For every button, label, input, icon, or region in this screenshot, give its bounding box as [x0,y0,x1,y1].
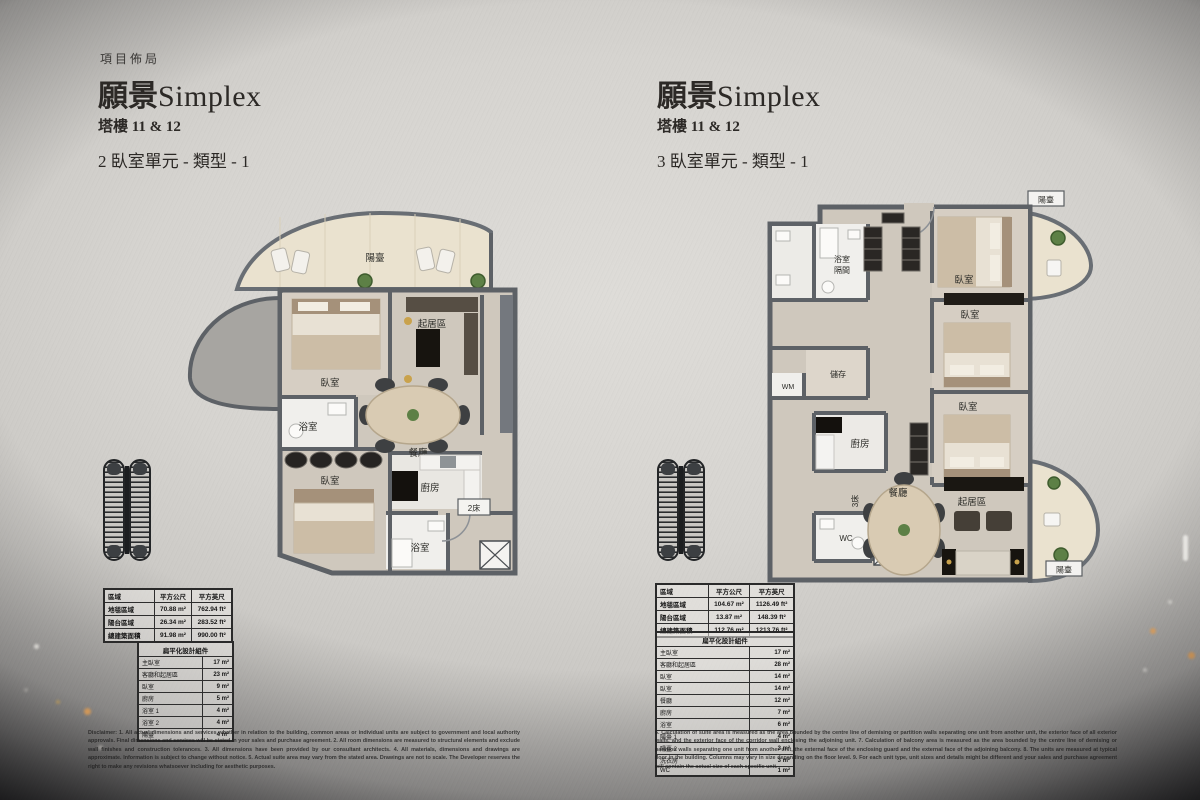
right-title-latin: Simplex [717,80,821,113]
toilet [852,537,864,549]
kitchen-label: 廚房 [850,438,869,450]
window-band [500,295,513,433]
area-cell: 990.00 ft² [192,629,232,643]
toilet [822,281,834,293]
balcony-table [1047,260,1061,276]
bedroom1-label: 臥室 [954,274,973,286]
bath-label-line1: 浴室 [834,254,850,264]
left-area-table: 區域 平方公尺 平方英尺 地毯區域 70.88 m² 762.94 ft² 陽台… [103,588,233,643]
area-cell: 地毯區域 [104,603,154,616]
elevator-icon [655,458,707,562]
component-cell: 14 m² [750,683,794,695]
floor-plan-2br: 陽臺 臥室 起居區 浴室 [180,203,525,578]
bedroom1-label: 臥室 [320,377,339,389]
bath1-label: 浴室 [298,421,317,433]
facade-wedge [190,298,280,409]
sofa [942,549,1024,575]
svg-text:陽臺: 陽臺 [1038,195,1054,205]
component-cell: 廚房 [656,707,750,719]
area-cell: 762.94 ft² [192,603,232,616]
city-light [56,700,60,704]
area-cell: 148.39 ft² [750,611,794,624]
elevator-icon [101,458,153,562]
sink [328,403,346,415]
table-row: 區域 平方公尺 平方英尺 [104,589,232,603]
area-cell: 1126.49 ft² [750,598,794,611]
component-cell: 28 m² [750,659,794,671]
bedroom3-label: 臥室 [958,401,977,413]
bed [944,323,1010,387]
balcony-bottom-tag: 陽臺 [1046,561,1082,576]
component-table-title: 扁平化設計組件 [656,632,794,647]
left-tower-label: 塔樓 11 & 12 [98,115,262,136]
component-cell: 7 m² [750,707,794,719]
area-cell: 91.98 m² [154,629,192,643]
city-light [1183,535,1188,561]
living-label: 起居區 [418,319,447,330]
wc-label: WC [839,534,853,543]
component-cell: 餐廳 [656,695,750,707]
component-cell: 浴室 1 [138,705,203,717]
table-row: 陽台區域 26.34 m² 283.52 ft² [104,616,232,629]
component-table-title: 扁平化設計組件 [138,642,233,657]
disclaimer-left: Disclaimer: 1. All actual dimensions and… [88,729,520,771]
component-cell: 臥室 [138,681,203,693]
bath2-label: 浴室 [410,542,429,554]
table-row: 扁平化設計組件 [656,632,794,647]
media-band [944,293,1024,305]
kitchen-label: 廚房 [420,482,439,494]
armchair [986,511,1012,531]
left-unit-type-label: 2 臥室單元 - 類型 - 1 [98,147,262,172]
entry-gap [904,203,934,211]
table-row: 餐廳12 m² [656,695,794,707]
beds-tag: 3床 [850,495,860,507]
table-row: 地毯區域 70.88 m² 762.94 ft² [104,603,232,616]
plant-icon [358,274,372,288]
plant-icon [1048,477,1060,489]
right-title-cjk: 願景 [657,80,717,113]
component-cell: 主臥室 [138,657,203,669]
table-row: 客廳和起居區23 m² [138,669,233,681]
component-cell: 廚房 [138,693,203,705]
table-row: 臥室9 m² [138,681,233,693]
left-title-cjk: 願景 [98,80,158,113]
table-row: 客廳和起居區28 m² [656,659,794,671]
table-row: 扁平化設計組件 [138,642,233,657]
plant-icon [1054,548,1068,562]
bed [294,489,374,553]
bed [938,217,1012,287]
fixture [776,231,790,241]
dining-label: 餐廳 [888,487,908,499]
table-row: 廚房5 m² [138,693,233,705]
component-cell: 臥室 [656,671,750,683]
component-cell: 5 m² [203,693,233,705]
lamp-icon [404,375,412,383]
living-label: 起居區 [958,497,987,508]
area-cell: 陽台區域 [104,616,154,629]
table-row: 陽台區域 13.87 m² 148.39 ft² [656,611,794,624]
area-cell: 26.34 m² [154,616,192,629]
balcony-top-tag: 陽臺 [1028,191,1064,206]
component-cell: 12 m² [750,695,794,707]
bedroom2-label: 臥室 [320,475,339,487]
area-header-region: 區域 [656,584,708,598]
tv-unit [944,477,1024,491]
table-row: 浴室 14 m² [138,705,233,717]
area-cell: 283.52 ft² [192,616,232,629]
tub [820,228,838,258]
city-light [24,688,28,692]
area-cell: 地毯區域 [656,598,708,611]
area-cell: 70.88 m² [154,603,192,616]
city-light [1143,668,1147,672]
table-row: 主臥室17 m² [138,657,233,669]
left-unit-header: 願景Simplex 塔樓 11 & 12 2 臥室單元 - 類型 - 1 [98,82,262,172]
area-header-sqft: 平方英尺 [750,584,794,598]
floor-plan-3br: 陽臺 陽臺 [758,183,1103,588]
svg-text:2床: 2床 [468,503,480,513]
right-unit-type-label: 3 臥室單元 - 類型 - 1 [657,147,821,172]
disclaimer-right: 6. Calculation of suite area is measured… [655,729,1117,771]
component-cell: 9 m² [203,681,233,693]
beds-tag: 2床 [458,499,490,515]
table-row: 臥室14 m² [656,683,794,695]
svg-text:陽臺: 陽臺 [1056,565,1072,575]
right-area-table: 區域 平方公尺 平方英尺 地毯區域 104.67 m² 1126.49 ft² … [655,583,795,638]
right-unit-header: 願景Simplex 塔樓 11 & 12 3 臥室單元 - 類型 - 1 [657,82,821,172]
component-cell: 4 m² [203,705,233,717]
city-light [1168,600,1172,604]
area-header-sqft: 平方英尺 [192,589,232,603]
table-row: 廚房7 m² [656,707,794,719]
sofa [406,297,478,312]
tv-unit [416,329,440,367]
kitchen-counter [816,435,834,469]
right-tower-label: 塔樓 11 & 12 [657,115,821,136]
table-row: 總建築面積 91.98 m² 990.00 ft² [104,629,232,643]
bath-label-line2: 隔間 [834,266,850,275]
component-cell: 客廳和起居區 [656,659,750,671]
area-cell: 總建築面積 [104,629,154,643]
wm-label: WM [782,384,795,391]
bedroom2-label: 臥室 [960,309,979,321]
right-unit-title: 願景Simplex [657,82,821,112]
sink [848,230,860,239]
balcony-label: 陽臺 [365,252,384,264]
stove [440,456,456,468]
city-light [1150,628,1156,634]
area-header-region: 區域 [104,589,154,603]
sink [820,519,834,529]
component-cell: 17 m² [750,647,794,659]
bed [292,299,380,369]
shaft-box [480,541,510,569]
component-cell: 主臥室 [656,647,750,659]
table-row: 臥室14 m² [656,671,794,683]
table-row: 地毯區域 104.67 m² 1126.49 ft² [656,598,794,611]
sofa [464,313,478,375]
plant-icon [471,274,485,288]
component-cell: 臥室 [656,683,750,695]
left-component-table: 扁平化設計組件 主臥室17 m² 客廳和起居區23 m² 臥室9 m² 廚房5 … [137,641,234,742]
plant-icon [1051,231,1065,245]
balcony-table [1044,513,1060,526]
section-eyebrow: 項目佈局 [100,50,160,67]
component-cell: 浴室 2 [138,717,203,729]
storage-label: 儲存 [830,369,846,379]
area-header-sqm: 平方公尺 [708,584,750,598]
component-cell: 17 m² [203,657,233,669]
component-cell: 14 m² [750,671,794,683]
sink [428,521,444,531]
table-row: 主臥室17 m² [656,647,794,659]
city-light [1188,652,1195,659]
bed [944,415,1010,479]
armchair [954,511,980,531]
city-light [34,644,39,649]
left-unit-title: 願景Simplex [98,82,262,112]
area-cell: 104.67 m² [708,598,750,611]
table-row: 浴室 24 m² [138,717,233,729]
area-header-sqm: 平方公尺 [154,589,192,603]
brochure-page: 項目佈局 願景Simplex 塔樓 11 & 12 2 臥室單元 - 類型 - … [0,0,1200,800]
city-light [84,708,91,715]
fixture [776,275,790,285]
component-cell: 23 m² [203,669,233,681]
kitchen-counter-dark [392,471,418,501]
left-title-latin: Simplex [158,80,262,113]
area-cell: 陽台區域 [656,611,708,624]
table-row: 區域 平方公尺 平方英尺 [656,584,794,598]
component-cell: 4 m² [203,717,233,729]
kitchen-counter-dark [816,417,842,433]
area-cell: 13.87 m² [708,611,750,624]
lamp-icon [404,317,412,325]
tub [392,539,412,567]
component-cell: 客廳和起居區 [138,669,203,681]
